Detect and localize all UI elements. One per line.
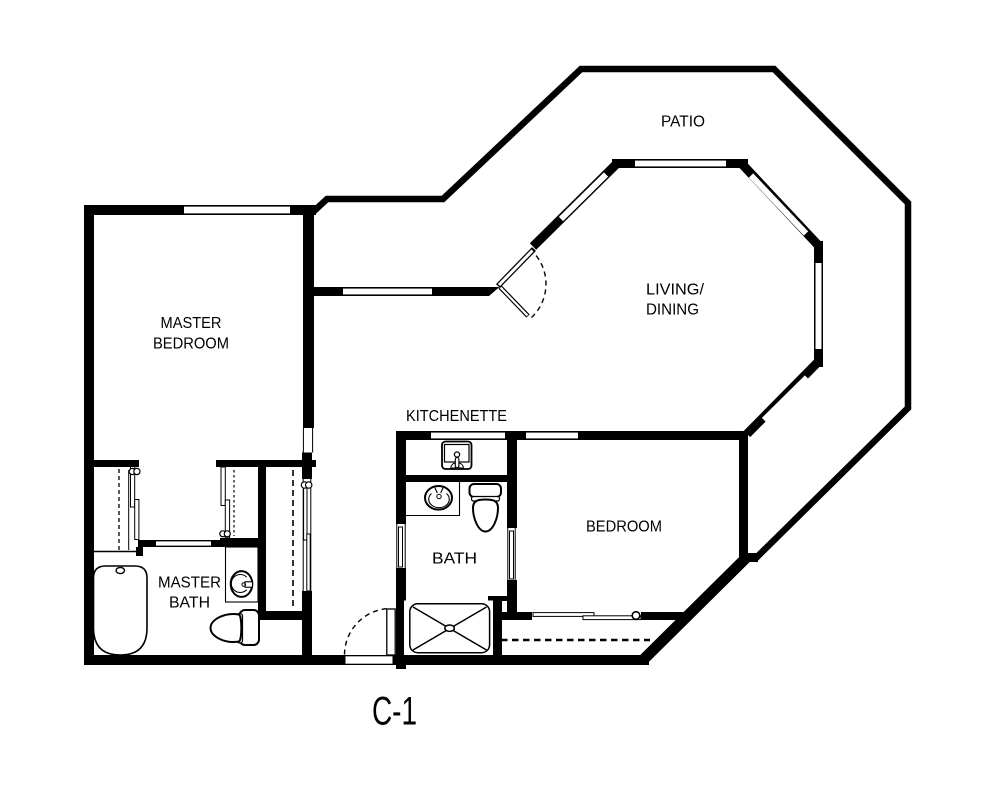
svg-text:BATH: BATH [169, 595, 210, 612]
svg-text:BEDROOM: BEDROOM [153, 336, 229, 353]
svg-text:MASTER: MASTER [158, 575, 221, 592]
svg-text:C-1: C-1 [372, 690, 417, 734]
svg-text:MASTER: MASTER [161, 315, 222, 332]
svg-text:BATH: BATH [432, 551, 477, 568]
svg-text:DINING: DINING [646, 302, 699, 319]
svg-text:PATIO: PATIO [661, 114, 705, 131]
svg-text:BEDROOM: BEDROOM [586, 519, 662, 536]
svg-text:KITCHENETTE: KITCHENETTE [406, 408, 507, 425]
svg-text:LIVING/: LIVING/ [646, 282, 705, 299]
